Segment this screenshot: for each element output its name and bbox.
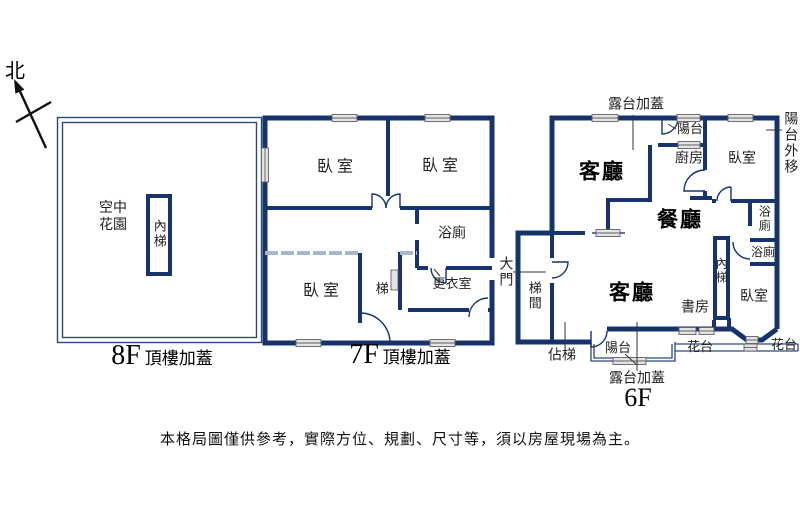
floorplan-page: 北 空中花園 內梯 8F頂樓加蓋 臥室 臥室 臥室 浴廁 更衣室 梯 7F頂樓加… <box>0 0 800 512</box>
room-label-sky-garden: 空中花園 <box>99 201 133 235</box>
room-label-bathroom-7f: 浴廁 <box>438 227 466 244</box>
room-label-stairs-7f: 梯 <box>373 282 389 297</box>
room-label-bedroom-7f-3: 臥室 <box>303 281 343 300</box>
room-label-dining-room: 餐廳 <box>657 207 703 232</box>
room-label-kitchen: 廚房 <box>675 152 703 169</box>
room-label-occupied-stairs: 佔梯 <box>548 349 576 366</box>
caption-7f: 7F頂樓加蓋 <box>349 339 451 371</box>
room-label-study: 書房 <box>681 301 709 318</box>
room-label-bedroom-6f-bottom: 臥室 <box>740 290 768 307</box>
room-label-bedroom-7f-1: 臥室 <box>317 157 357 176</box>
annotation-balcony-moved-out: 陽台外移 <box>781 111 798 175</box>
room-label-living-room-bottom: 客廳 <box>609 280 655 305</box>
room-label-balcony-bottom: 陽台 <box>605 340 631 356</box>
plan-7f-door-leaf <box>391 270 398 290</box>
room-label-bedroom-7f-2: 臥室 <box>422 156 462 175</box>
room-label-balcony-top: 陽台 <box>677 121 703 137</box>
caption-8f: 8F頂樓加蓋 <box>111 340 213 372</box>
north-arrow-icon <box>14 79 51 148</box>
caption-7f-number: 7F <box>349 339 379 370</box>
caption-8f-suffix: 頂樓加蓋 <box>145 349 213 368</box>
annotation-terrace-top: 露台加蓋 <box>608 98 664 115</box>
room-label-living-room-top: 客廳 <box>579 159 625 184</box>
room-label-flower-bed-right: 花台 <box>771 337 797 353</box>
room-label-flower-bed-left: 花台 <box>687 339 713 355</box>
caption-6f-number: 6F <box>624 383 651 412</box>
room-label-bathroom-upper: 浴廁 <box>757 205 771 233</box>
caption-6f: 6F <box>624 383 651 413</box>
room-label-bedroom-6f-top: 臥室 <box>728 152 756 169</box>
annotation-main-door: 大門 <box>496 256 513 288</box>
room-label-stairwell: 梯間 <box>526 281 542 311</box>
room-label-inner-stairs-8f: 內梯 <box>151 219 167 249</box>
disclaimer-text: 本格局圖僅供參考，實際方位、規劃、尺寸等，須以房屋現場為主。 <box>0 428 800 449</box>
caption-8f-number: 8F <box>111 340 141 371</box>
north-label: 北 <box>5 55 25 84</box>
caption-7f-suffix: 頂樓加蓋 <box>383 348 451 367</box>
room-label-bathroom-lower: 浴廁 <box>751 245 775 259</box>
room-label-dressing-room: 更衣室 <box>432 276 471 292</box>
room-label-inner-stairs-6f: 內梯 <box>714 257 728 285</box>
